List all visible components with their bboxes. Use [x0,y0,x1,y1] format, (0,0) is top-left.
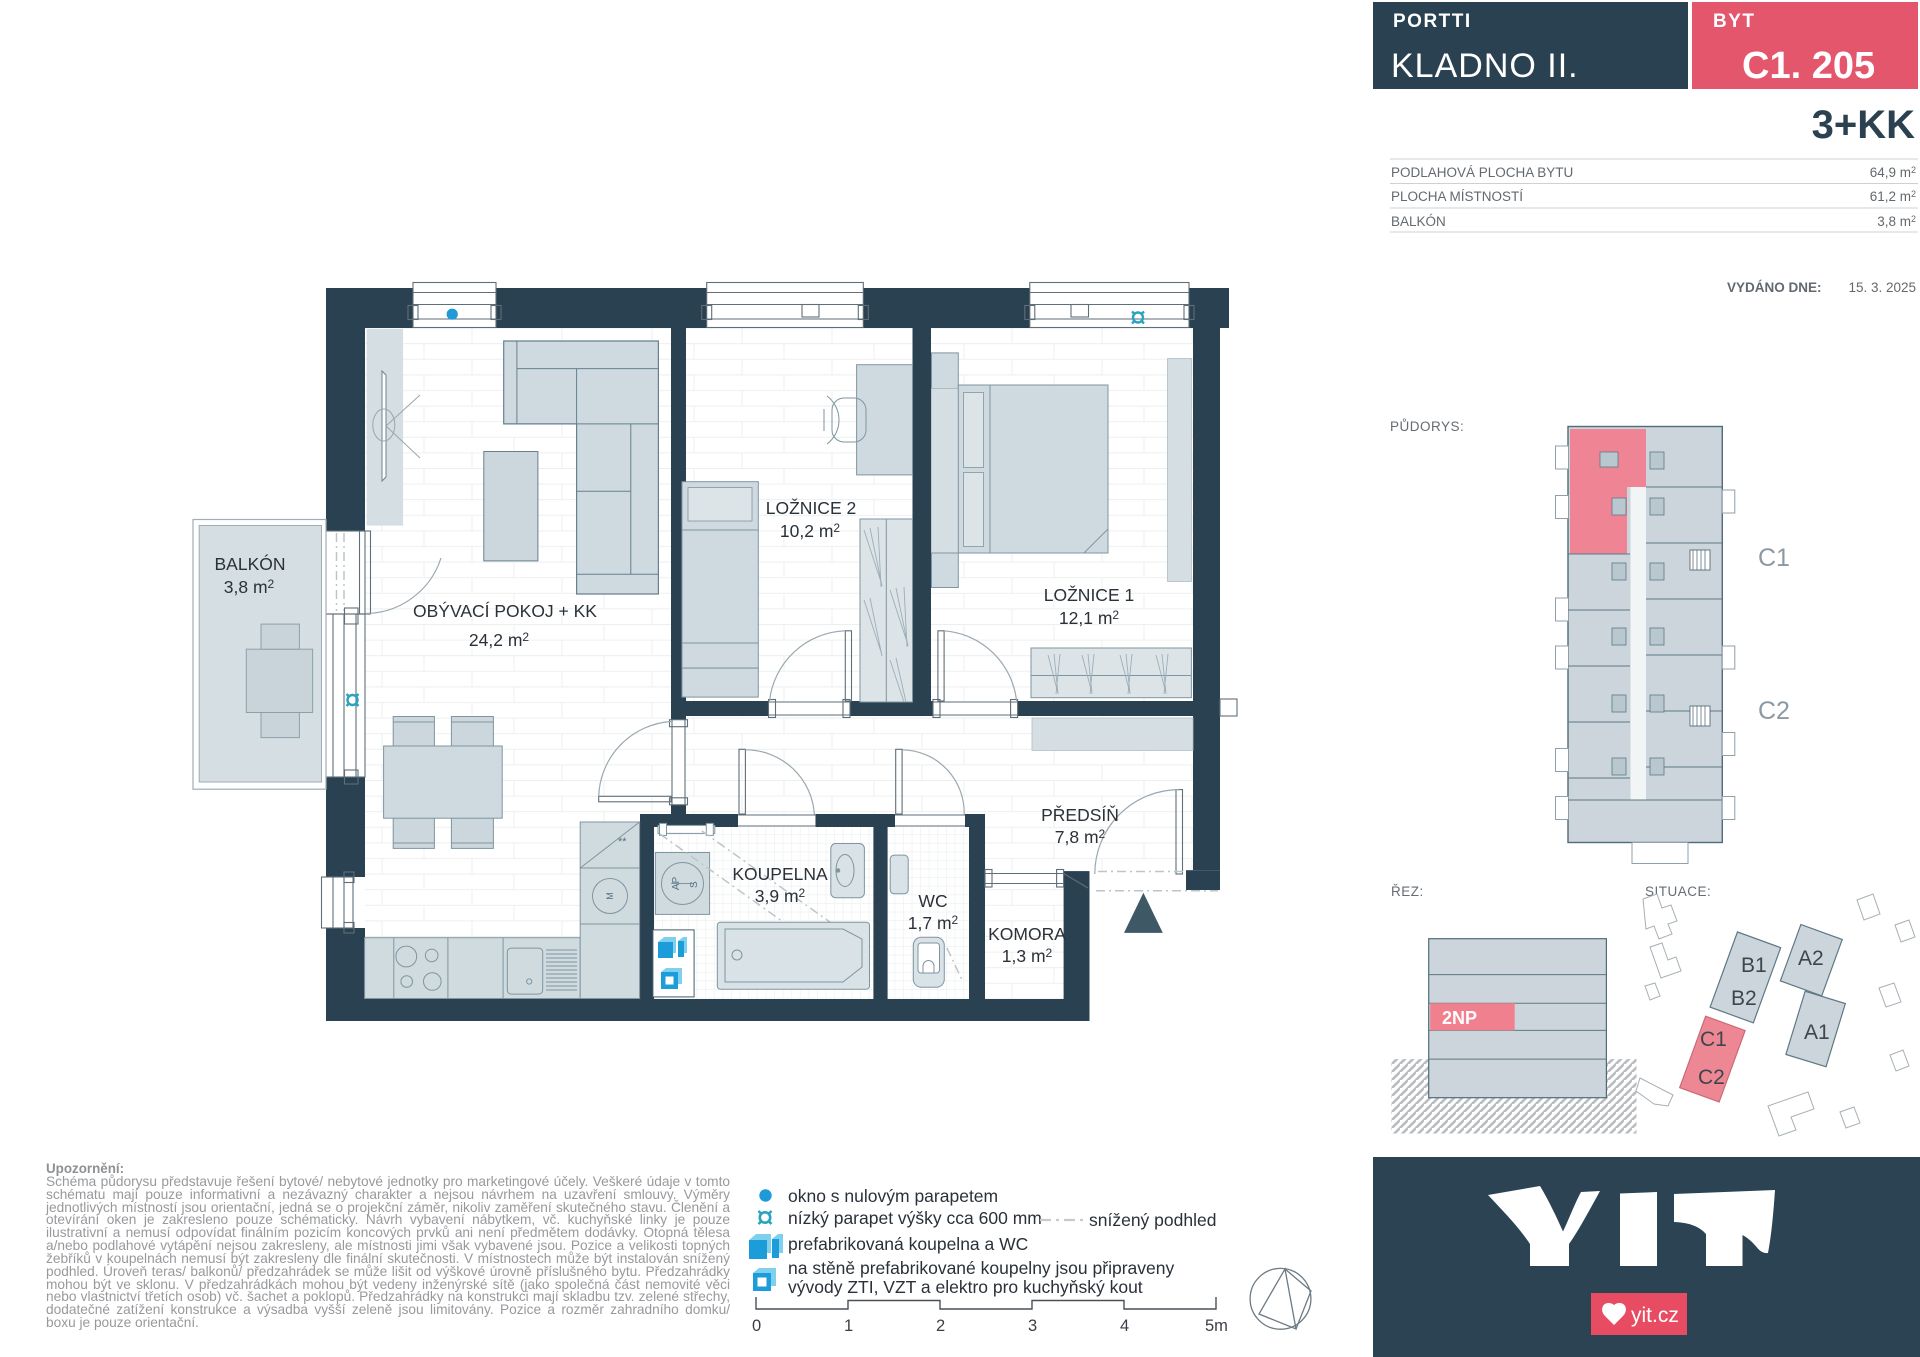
svg-text:1,7 m2: 1,7 m2 [908,913,959,933]
svg-text:AP: AP [671,877,682,891]
svg-text:1,3 m2: 1,3 m2 [1002,946,1053,966]
svg-text:3,8 m2: 3,8 m2 [1877,214,1916,229]
svg-text:WC: WC [918,891,947,911]
svg-text:nízký parapet výšky cca 600 mm: nízký parapet výšky cca 600 mm [788,1208,1042,1228]
svg-text:B2: B2 [1731,987,1757,1010]
svg-text:M: M [605,892,615,900]
svg-text:1: 1 [844,1317,853,1335]
svg-text:VYDÁNO DNE:: VYDÁNO DNE: [1727,280,1822,295]
svg-text:vývody ZTI, VZT a elektro pro: vývody ZTI, VZT a elektro pro kuchyňský … [788,1277,1143,1297]
svg-text:2NP: 2NP [1442,1008,1477,1028]
svg-text:61,2 m2: 61,2 m2 [1870,189,1916,204]
svg-text:5m: 5m [1205,1317,1228,1335]
svg-text:**: ** [618,836,627,848]
svg-text:S: S [689,881,700,888]
svg-text:KOUPELNA: KOUPELNA [732,864,828,884]
svg-text:okno s nulovým parapetem: okno s nulovým parapetem [788,1186,998,1206]
svg-text:2: 2 [936,1317,945,1335]
svg-text:24,2 m2: 24,2 m2 [469,630,530,650]
svg-text:KOMORA: KOMORA [988,924,1066,944]
svg-text:15. 3. 2025: 15. 3. 2025 [1848,280,1916,295]
svg-text:PLOCHA MÍSTNOSTÍ: PLOCHA MÍSTNOSTÍ [1391,189,1523,204]
svg-text:12,1 m2: 12,1 m2 [1059,608,1120,628]
svg-text:10,2 m2: 10,2 m2 [780,521,841,541]
svg-text:PŮDORYS:: PŮDORYS: [1390,419,1464,434]
svg-text:C1: C1 [1758,544,1790,572]
svg-text:LOŽNICE 2: LOŽNICE 2 [766,498,856,518]
svg-text:3: 3 [1028,1317,1037,1335]
svg-text:A1: A1 [1804,1021,1830,1044]
svg-text:yit.cz: yit.cz [1631,1304,1679,1327]
svg-text:0: 0 [752,1317,761,1335]
svg-text:PŘEDSÍŇ: PŘEDSÍŇ [1041,805,1119,825]
svg-text:7,8 m2: 7,8 m2 [1055,827,1106,847]
svg-text:ŘEZ:: ŘEZ: [1391,884,1424,899]
svg-text:C2: C2 [1758,697,1790,725]
svg-text:snížený podhled: snížený podhled [1089,1210,1216,1230]
svg-text:64,9 m2: 64,9 m2 [1870,165,1916,180]
svg-text:PODLAHOVÁ PLOCHA BYTU: PODLAHOVÁ PLOCHA BYTU [1391,165,1573,180]
svg-text:KLADNO II.: KLADNO II. [1391,47,1579,85]
svg-text:PORTTI: PORTTI [1393,11,1472,32]
svg-text:na stěně prefabrikované koupel: na stěně prefabrikované koupelny jsou př… [788,1258,1174,1278]
svg-text:C2: C2 [1698,1066,1725,1089]
svg-text:LOŽNICE 1: LOŽNICE 1 [1044,585,1134,605]
svg-text:3,8 m2: 3,8 m2 [224,577,275,597]
svg-text:BYT: BYT [1713,11,1756,32]
svg-text:C1: C1 [1700,1028,1727,1051]
svg-text:OBÝVACÍ POKOJ + KK: OBÝVACÍ POKOJ + KK [413,601,597,621]
svg-text:3+KK: 3+KK [1812,103,1915,147]
svg-text:BALKÓN: BALKÓN [1391,214,1446,229]
svg-text:4: 4 [1120,1317,1129,1335]
svg-text:3,9 m2: 3,9 m2 [755,886,806,906]
svg-text:prefabrikovaná koupelna a WC: prefabrikovaná koupelna a WC [788,1234,1028,1254]
svg-text:B1: B1 [1741,954,1767,977]
svg-text:A2: A2 [1798,947,1824,970]
svg-text:BALKÓN: BALKÓN [215,553,286,574]
svg-text:C1. 205: C1. 205 [1742,45,1875,87]
